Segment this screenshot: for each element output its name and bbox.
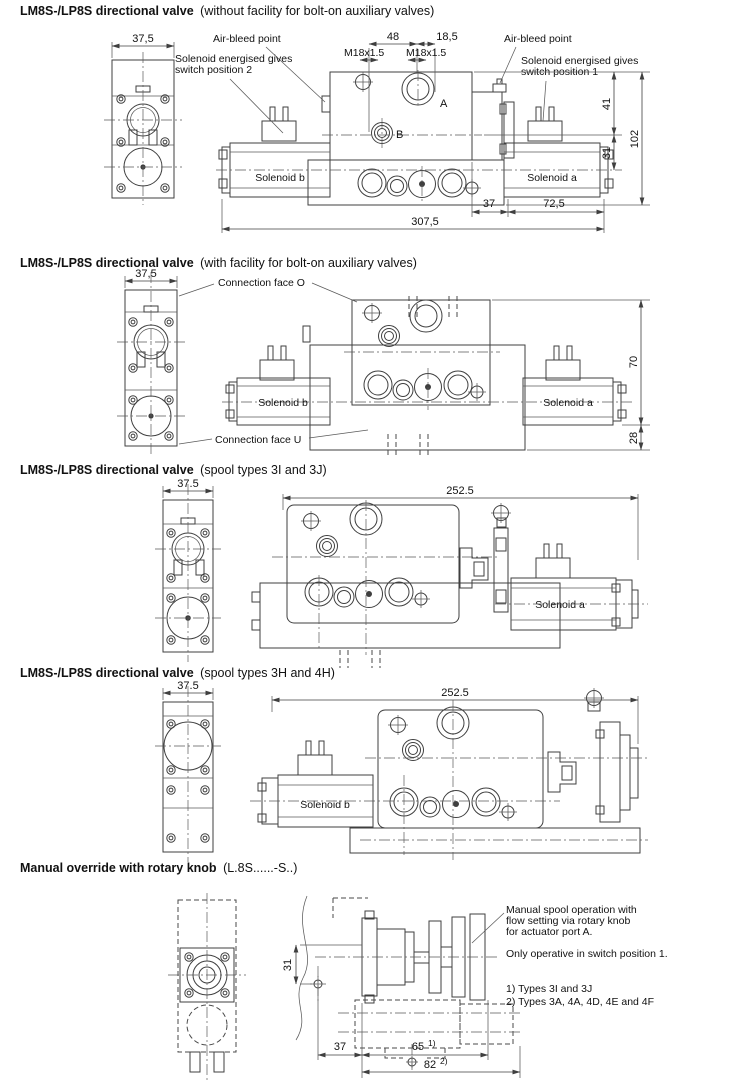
dim-18-5: 18,5	[436, 31, 457, 43]
dim-37-5: 37,5	[135, 268, 156, 280]
technical-drawings: 48 18,5 M18x1.5 M18x1.5 Air-bleed point …	[0, 0, 738, 1081]
thread-label-a: M18x1.5	[406, 47, 446, 59]
s1-leader-labels: Air-bleed point Solenoid energised gives…	[132, 33, 638, 184]
footnote-1: 1) Types 3I and 3J	[506, 983, 592, 995]
solenoid-a-label: Solenoid a	[543, 397, 593, 409]
dim-82-ref: 2)	[440, 1056, 448, 1066]
dim-31: 31	[282, 959, 294, 971]
dim-31: 31	[601, 147, 613, 159]
connection-face-u-label: Connection face U	[215, 434, 301, 446]
dim-70: 70	[628, 356, 640, 368]
thread-label-b: M18x1.5	[344, 47, 384, 59]
s4-end-view: 37.5	[155, 680, 221, 862]
dim-28: 28	[628, 432, 640, 444]
connection-face-o-label: Connection face O	[218, 277, 305, 289]
dim-48: 48	[387, 31, 399, 43]
s2-right-dimensions: 70 28	[492, 300, 650, 450]
dim-37-5: 37,5	[132, 33, 153, 45]
s1-main-view	[216, 70, 616, 205]
s3-main-view: 252.5	[252, 485, 648, 668]
note-operation-line3: for actuator port A.	[506, 926, 592, 938]
dim-307-5: 307,5	[411, 216, 439, 228]
solenoid-b-label: Solenoid b	[258, 397, 308, 409]
s1-top-dimensions: 48 18,5 M18x1.5 M18x1.5	[344, 31, 458, 132]
s1-end-view	[104, 42, 182, 205]
footnote-2: 2) Types 3A, 4A, 4D, 4E and 4F	[506, 996, 654, 1008]
dim-252-5: 252.5	[446, 485, 474, 497]
solenoid-a-label: Solenoid a	[527, 172, 577, 184]
port-a-label: A	[440, 98, 448, 110]
s3-end-view: 37.5	[155, 478, 221, 662]
solenoid-b-label: Solenoid b	[255, 172, 305, 184]
note-switch-position: Only operative in switch position 1.	[506, 948, 668, 960]
dim-65: 65	[412, 1041, 424, 1053]
s2-leader-labels: Connection face O Connection face U	[179, 277, 368, 446]
s4-main-view: 252.5 Solenoid b	[250, 687, 648, 860]
air-bleed-right-label: Air-bleed point	[504, 33, 572, 45]
s4-drawing-spool-3h-4h: 37.5 252.5	[155, 680, 648, 862]
dim-102: 102	[629, 130, 641, 148]
s5-main-view	[296, 896, 520, 1070]
dim-65-ref: 1)	[428, 1038, 436, 1048]
dim-37: 37	[483, 198, 495, 210]
port-b-label: B	[396, 129, 403, 141]
datasheet-page: LM8S-/LP8S directional valve (without fa…	[0, 0, 738, 1081]
dim-72-5: 72,5	[543, 198, 564, 210]
s5-notes: Manual spool operation with flow setting…	[472, 904, 668, 1008]
s2-end-view: 37,5	[117, 268, 185, 456]
s5-drawing-manual-override: 31 37 65 1) 82 2) Manual spool operation…	[168, 893, 668, 1080]
s5-end-view	[168, 893, 246, 1080]
dim-82: 82	[424, 1059, 436, 1071]
dim-37: 37	[334, 1041, 346, 1053]
s2-drawing-valve-with-aux: 37,5	[117, 268, 650, 458]
dim-252-5: 252.5	[441, 687, 469, 699]
s1-drawing-valve-without-aux: 48 18,5 M18x1.5 M18x1.5 Air-bleed point …	[104, 31, 650, 233]
s3-drawing-spool-3i-3j: 37.5 252.5	[155, 478, 648, 668]
solenoid-a-label: Solenoid a	[535, 599, 585, 611]
energised-2-line2: switch position 2	[175, 64, 252, 76]
dim-41: 41	[601, 98, 613, 110]
air-bleed-left-label: Air-bleed point	[213, 33, 281, 45]
